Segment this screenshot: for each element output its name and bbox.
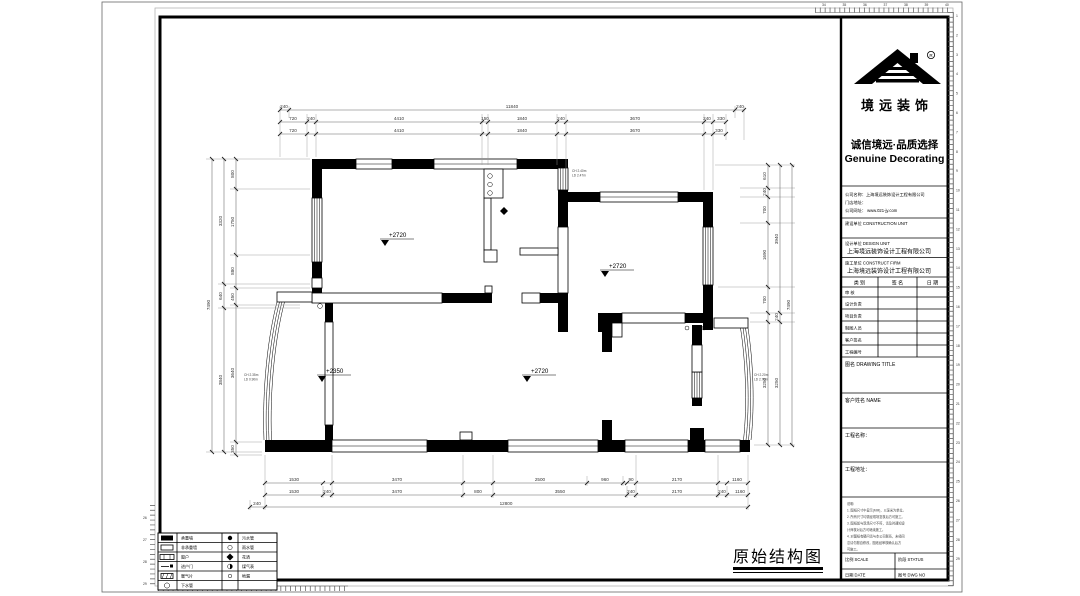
cad-sheet: 1234567891011121314151617181920212223242… xyxy=(0,0,1080,596)
project-address-field: 工程地址： xyxy=(845,466,870,473)
svg-text:29: 29 xyxy=(956,557,960,561)
svg-text:煤气表: 煤气表 xyxy=(242,563,254,569)
elevation-marker-1: +2720 xyxy=(380,232,414,246)
svg-text:签 名: 签 名 xyxy=(892,280,903,287)
svg-text:意请勿擅自修改，图纸经审核确认后方: 意请勿擅自修改，图纸经审核确认后方 xyxy=(847,540,901,545)
bay-window-left xyxy=(264,302,285,440)
registered-mark-icon: R xyxy=(927,51,934,58)
svg-text:类 别: 类 别 xyxy=(854,280,865,287)
builder-unit-label: 施工单位 CONSTRUCT FIRM xyxy=(845,260,901,267)
hatched-windows xyxy=(312,168,713,398)
svg-text:工程编号: 工程编号 xyxy=(845,349,862,356)
legend-sewage-icon xyxy=(228,536,232,540)
svg-text:客户签名: 客户签名 xyxy=(845,337,862,344)
svg-text:3550: 3550 xyxy=(555,489,566,494)
construction-unit-label: 建设单位 CONSTRUCTION UNIT xyxy=(845,220,908,227)
legend-window-icon xyxy=(160,555,174,560)
svg-text:LD 0.90m: LD 0.90m xyxy=(244,378,258,382)
svg-text:地漏: 地漏 xyxy=(242,573,250,579)
svg-text:330: 330 xyxy=(715,128,723,133)
svg-text:17: 17 xyxy=(956,324,960,328)
svg-text:承重墙: 承重墙 xyxy=(181,535,193,541)
signature-table: 类 别 签 名 日 期 审 核 设计负责 项目负责 制图人员 客户签名 工程编号 xyxy=(841,277,948,357)
svg-text:27: 27 xyxy=(956,518,960,522)
svg-text:36: 36 xyxy=(863,3,867,7)
project-name-field: 工程名称： xyxy=(845,432,870,439)
svg-text:1160: 1160 xyxy=(732,477,742,482)
svg-text:14: 14 xyxy=(956,266,960,270)
company-name-line: 公司名称：上海境远装饰设计工程有限公司 xyxy=(845,191,925,198)
dwg-no-field: 图号 DWG NO xyxy=(898,573,926,579)
svg-text:1530: 1530 xyxy=(289,477,300,482)
svg-text:13: 13 xyxy=(956,247,960,251)
svg-text:3940: 3940 xyxy=(774,233,779,244)
svg-text:240: 240 xyxy=(557,116,565,121)
drawing-canvas: 1234567891011121314151617181920212223242… xyxy=(0,0,1080,596)
svg-text:240: 240 xyxy=(703,116,711,121)
svg-text:+2720: +2720 xyxy=(609,263,627,270)
elevation-marker-4: +2720 xyxy=(522,368,556,382)
ruler-top-numbers: 34353637383940 xyxy=(822,3,949,7)
svg-text:R: R xyxy=(929,53,933,58)
svg-text:1530: 1530 xyxy=(289,489,300,494)
svg-text:4: 4 xyxy=(956,72,958,76)
legend-radiator-icon xyxy=(161,574,173,579)
svg-text:2: 2 xyxy=(956,33,958,37)
svg-text:240: 240 xyxy=(718,489,726,494)
svg-text:雨水管: 雨水管 xyxy=(242,544,254,550)
svg-text:9: 9 xyxy=(956,169,958,173)
title-block: R 境远装饰 诚信境远·品质选择 Genuine Decorating 公司名称… xyxy=(841,49,948,580)
svg-text:240: 240 xyxy=(762,188,767,196)
svg-text:7490: 7490 xyxy=(206,299,211,310)
load-bearing-walls xyxy=(265,159,750,452)
floor-plan: +2720 +2720 +2350 +2720 CH 2.40m LD 2.47… xyxy=(244,159,769,452)
date-field: 日期 DATE xyxy=(845,573,866,579)
svg-text:240: 240 xyxy=(627,489,635,494)
drawing-title-field: 图名 DRAWING TITLE xyxy=(845,361,896,368)
height-note-top: CH 2.40m LD 2.47m xyxy=(572,169,587,178)
svg-text:240: 240 xyxy=(736,104,744,109)
svg-text:640: 640 xyxy=(218,292,223,300)
svg-text:设计负责: 设计负责 xyxy=(845,301,862,308)
svg-text:3250: 3250 xyxy=(774,377,779,388)
svg-text:22: 22 xyxy=(956,421,960,425)
svg-text:说明:: 说明: xyxy=(847,501,854,506)
svg-text:24: 24 xyxy=(956,460,960,464)
svg-text:2. 所有尺寸均需经现场复核后方可施工。: 2. 所有尺寸均需经现场复核后方可施工。 xyxy=(847,514,905,519)
svg-text:3470: 3470 xyxy=(392,477,403,482)
svg-text:3: 3 xyxy=(956,53,958,57)
svg-text:+2720: +2720 xyxy=(531,368,549,375)
svg-text:制图人员: 制图人员 xyxy=(845,325,862,332)
svg-text:1: 1 xyxy=(956,14,958,18)
dimensions-left: 7490 3320 640 3840 800 1750 880 450 3640… xyxy=(206,157,310,457)
svg-text:12800: 12800 xyxy=(500,501,513,506)
dimensions-right: 610 240 700 1690 700 3250 3940 240 3250 … xyxy=(715,163,795,447)
svg-text:CH 2.35m: CH 2.35m xyxy=(244,373,259,377)
svg-text:1750: 1750 xyxy=(230,216,235,227)
svg-text:20: 20 xyxy=(956,383,960,387)
svg-text:下水管: 下水管 xyxy=(181,582,193,588)
svg-text:1160: 1160 xyxy=(735,489,745,494)
partition-walls xyxy=(277,198,748,440)
svg-text:720: 720 xyxy=(289,128,297,133)
svg-text:审 核: 审 核 xyxy=(845,289,855,296)
svg-text:240: 240 xyxy=(323,489,331,494)
status-field: 阶段 STATUS xyxy=(898,556,924,563)
svg-text:38: 38 xyxy=(904,3,908,7)
svg-text:3670: 3670 xyxy=(630,116,641,121)
svg-text:窗户: 窗户 xyxy=(181,554,189,560)
svg-text:2500: 2500 xyxy=(535,477,546,482)
svg-text:1840: 1840 xyxy=(517,128,528,133)
svg-text:240: 240 xyxy=(253,501,261,506)
svg-text:3250: 3250 xyxy=(762,377,767,388)
svg-text:11840: 11840 xyxy=(506,104,519,109)
svg-text:污水管: 污水管 xyxy=(242,535,254,541)
legend-wall-solid-icon xyxy=(161,536,173,541)
svg-text:4410: 4410 xyxy=(394,116,405,121)
svg-text:3. 图纸如与现场尺寸不符，请及时通知设: 3. 图纸如与现场尺寸不符，请及时通知设 xyxy=(847,521,906,526)
svg-text:610: 610 xyxy=(762,172,767,180)
windows xyxy=(332,159,740,452)
svg-text:330: 330 xyxy=(717,116,725,121)
svg-text:计师核对后方可继续施工。: 计师核对后方可继续施工。 xyxy=(847,527,885,532)
svg-text:40: 40 xyxy=(945,3,949,7)
svg-text:19: 19 xyxy=(956,363,960,367)
svg-text:150: 150 xyxy=(481,116,489,121)
svg-text:720: 720 xyxy=(289,116,297,121)
svg-text:非承重墙: 非承重墙 xyxy=(181,544,197,550)
svg-text:240: 240 xyxy=(280,104,288,109)
svg-text:可施工。: 可施工。 xyxy=(847,547,860,552)
svg-text:39: 39 xyxy=(925,3,929,7)
svg-text:7490: 7490 xyxy=(786,299,791,310)
svg-text:15: 15 xyxy=(956,286,960,290)
svg-text:2170: 2170 xyxy=(672,489,683,494)
dimensions-top: 240 11840 240 720 240 4410 150 1840 240 … xyxy=(278,104,746,190)
dimensions-bottom: 1530 3470 2500 960 90 2170 1160 1530 240… xyxy=(248,455,750,510)
svg-text:1840: 1840 xyxy=(517,116,528,121)
company-store-line: 门店地址： xyxy=(845,199,866,206)
svg-text:35: 35 xyxy=(843,3,847,7)
svg-text:26: 26 xyxy=(143,516,147,520)
svg-text:25: 25 xyxy=(956,480,960,484)
pipe-shaft xyxy=(484,169,503,198)
scale-field: 比例 SCALE xyxy=(845,556,868,563)
svg-text:3470: 3470 xyxy=(392,489,403,494)
svg-text:34: 34 xyxy=(822,3,826,7)
builder-unit-company: 上海境远装饰设计工程有限公司 xyxy=(847,267,931,275)
svg-text:暖气片: 暖气片 xyxy=(181,573,193,579)
svg-text:10: 10 xyxy=(956,189,960,193)
svg-text:90: 90 xyxy=(628,477,634,482)
svg-text:+2720: +2720 xyxy=(389,232,407,239)
svg-text:240: 240 xyxy=(307,116,315,121)
ruler-right-numbers: 1234567891011121314151617181920212223242… xyxy=(956,14,960,561)
door-symbol xyxy=(500,207,508,215)
svg-text:日 期: 日 期 xyxy=(927,281,938,287)
elevation-marker-3: +2350 xyxy=(317,368,351,382)
company-web-line: 公司网址： www.021-jy.com xyxy=(845,207,898,214)
drawing-caption: 原始结构图 xyxy=(733,548,823,573)
svg-text:450: 450 xyxy=(230,293,235,301)
brand-logo-icon xyxy=(854,49,941,84)
legend-wall-hollow-icon xyxy=(161,545,173,550)
ruler-left-numbers: 26272829 xyxy=(143,516,147,586)
svg-text:6: 6 xyxy=(956,111,958,115)
svg-text:+2350: +2350 xyxy=(326,368,344,375)
svg-text:5: 5 xyxy=(956,92,958,96)
svg-text:700: 700 xyxy=(762,296,767,304)
svg-text:3840: 3840 xyxy=(218,374,223,385)
svg-text:18: 18 xyxy=(956,344,960,348)
svg-text:700: 700 xyxy=(762,206,767,214)
svg-text:27: 27 xyxy=(143,538,147,542)
sheet-notes: 说明: 1. 图纸尺寸中显示(MM)，以毫米为单位。 2. 所有尺寸均需经现场复… xyxy=(847,501,906,552)
svg-text:37: 37 xyxy=(884,3,888,7)
svg-text:350: 350 xyxy=(230,445,235,453)
svg-text:240: 240 xyxy=(774,313,779,321)
bay-window-right xyxy=(741,328,754,440)
svg-text:LD 2.47m: LD 2.47m xyxy=(572,174,586,178)
svg-text:7: 7 xyxy=(956,130,958,134)
height-note-left: CH 2.35m LD 0.90m xyxy=(244,373,259,382)
elevation-marker-2: +2720 xyxy=(600,263,634,277)
svg-text:进户门: 进户门 xyxy=(181,563,193,569)
svg-text:16: 16 xyxy=(956,305,960,309)
svg-text:8: 8 xyxy=(956,150,958,154)
svg-text:12: 12 xyxy=(956,227,960,231)
svg-text:26: 26 xyxy=(956,499,960,503)
svg-text:880: 880 xyxy=(230,267,235,275)
svg-text:4410: 4410 xyxy=(394,128,405,133)
ruler-right: 1234567891011121314151617181920212223242… xyxy=(951,12,960,586)
brand-slogan-en: Genuine Decorating xyxy=(845,153,945,165)
svg-text:项目负责: 项目负责 xyxy=(845,313,862,320)
design-unit-label: 设计单位 DESIGN UNIT xyxy=(845,240,890,247)
legend-table: 承重墙 非承重墙 窗户 进户门 暖气片 下水管 污水管 雨水管 花洒 煤气表 地… xyxy=(158,533,277,590)
svg-text:800: 800 xyxy=(474,489,482,494)
svg-text:花洒: 花洒 xyxy=(242,554,250,560)
svg-text:29: 29 xyxy=(143,582,147,586)
brand-name: 境远装饰 xyxy=(861,98,933,113)
client-name-field: 客户姓名 NAME xyxy=(845,397,882,404)
svg-text:28: 28 xyxy=(956,538,960,542)
design-unit-company: 上海境远装饰设计工程有限公司 xyxy=(847,248,931,256)
svg-text:28: 28 xyxy=(143,560,147,564)
svg-text:23: 23 xyxy=(956,441,960,445)
svg-text:2170: 2170 xyxy=(672,477,683,482)
ruler-left: 26272829 xyxy=(143,505,153,586)
svg-text:3640: 3640 xyxy=(230,367,235,378)
brand-slogan-cn: 诚信境远·品质选择 xyxy=(851,138,939,151)
svg-text:原始结构图: 原始结构图 xyxy=(733,548,823,566)
svg-text:3320: 3320 xyxy=(218,215,223,226)
svg-text:3670: 3670 xyxy=(630,128,641,133)
svg-text:21: 21 xyxy=(956,402,960,406)
svg-text:4. 对图纸有疑问请与本公司联系，未经同: 4. 对图纸有疑问请与本公司联系，未经同 xyxy=(847,534,905,539)
svg-text:CH 2.20m: CH 2.20m xyxy=(754,373,769,377)
svg-text:960: 960 xyxy=(601,477,609,482)
svg-text:CH 2.40m: CH 2.40m xyxy=(572,169,587,173)
svg-text:800: 800 xyxy=(230,170,235,178)
svg-text:11: 11 xyxy=(956,208,960,212)
svg-text:1690: 1690 xyxy=(762,249,767,260)
svg-text:1. 图纸尺寸中显示(MM)，以毫米为单位。: 1. 图纸尺寸中显示(MM)，以毫米为单位。 xyxy=(847,508,906,513)
